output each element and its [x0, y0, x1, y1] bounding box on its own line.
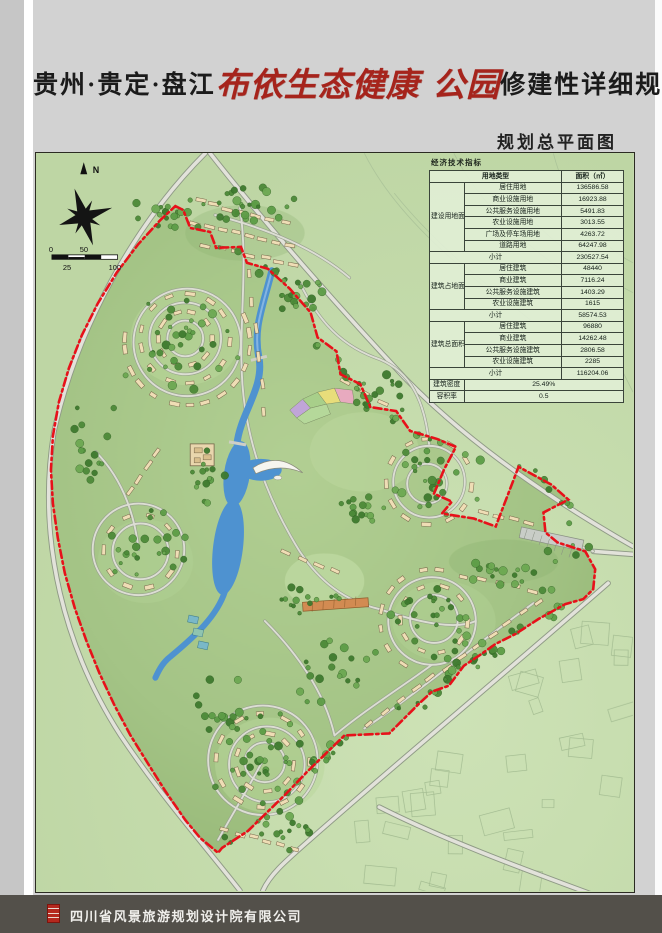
row-label: 公共服务设施用地: [464, 205, 562, 217]
title-block-footer: 四川省风景旅游规划设计院有限公司: [0, 895, 662, 933]
subtotal-value: 116204.06: [562, 368, 624, 380]
row-label: 居住建筑: [464, 321, 562, 333]
scale-0-label: 0: [49, 245, 53, 254]
group-total-floor-area: 建筑总面积: [430, 321, 465, 367]
subtotal-value: 58574.53: [562, 310, 624, 322]
row-value: 4263.72: [562, 228, 624, 240]
far-value: 0.5: [464, 391, 623, 403]
row-label: 商业设施用地: [464, 194, 562, 206]
col-header-land-type: 用地类型: [430, 171, 562, 183]
density-value: 25.49%: [464, 379, 623, 391]
row-value: 3013.55: [562, 217, 624, 229]
row-value: 2285: [562, 356, 624, 368]
far-label: 容积率: [430, 391, 465, 403]
row-value: 5491.83: [562, 205, 624, 217]
row-label: 广场及停车场用地: [464, 228, 562, 240]
row-value: 64247.98: [562, 240, 624, 252]
title-plan-type: 修建性详细规划: [500, 72, 662, 99]
company-name: 四川省风景旅游规划设计院有限公司: [70, 906, 302, 925]
col-header-area: 面积（㎡）: [562, 171, 624, 183]
row-label: 农业设施用地: [464, 217, 562, 229]
row-value: 2806.58: [562, 344, 624, 356]
table-caption: 经济技术指标: [431, 157, 624, 168]
row-label: 道路用地: [464, 240, 562, 252]
page-left-margin-band: [0, 0, 24, 895]
scale-25-label: 25: [63, 263, 71, 272]
row-value: 136586.58: [562, 182, 624, 194]
subtotal-label: 小计: [430, 310, 562, 322]
economic-indicators-table: 用地类型 面积（㎡） 建设用地面积 居住用地 136586.58 商业设施用地1…: [429, 170, 624, 403]
row-value: 96880: [562, 321, 624, 333]
row-label: 商业建筑: [464, 275, 562, 287]
row-value: 1615: [562, 298, 624, 310]
title-project-calligraphy: 布依生态健康 公园: [216, 65, 501, 104]
sheet-header: 贵州·贵定·盘江布依生态健康 公园修建性详细规划 规划总平面图: [33, 0, 655, 152]
density-label: 建筑密度: [430, 379, 465, 391]
scale-50-label: 50: [80, 245, 88, 254]
row-label: 商业建筑: [464, 333, 562, 345]
plan-sheet: { "header": { "title_prefix": "贵州·贵定·盘江"…: [0, 0, 662, 933]
row-label: 居住建筑: [464, 263, 562, 275]
drawing-name-label: 规划总平面图: [497, 128, 617, 153]
row-label: 公共服务设施建筑: [464, 344, 562, 356]
row-value: 14262.48: [562, 333, 624, 345]
row-label: 公共服务设施建筑: [464, 286, 562, 298]
scale-100-label: 100: [109, 263, 121, 272]
row-label: 农业设施建筑: [464, 356, 562, 368]
row-value: 7116.24: [562, 275, 624, 287]
subtotal-label: 小计: [430, 252, 562, 264]
row-value: 1403.29: [562, 286, 624, 298]
subtotal-value: 230527.54: [562, 252, 624, 264]
compass-north-label: N: [93, 165, 99, 175]
subtotal-label: 小计: [430, 368, 562, 380]
row-value: 48440: [562, 263, 624, 275]
group-construction-land: 建设用地面积: [430, 182, 465, 252]
page-title: 贵州·贵定·盘江布依生态健康 公园修建性详细规划: [33, 58, 655, 106]
row-value: 16923.88: [562, 194, 624, 206]
row-label: 农业设施建筑: [464, 298, 562, 310]
page-left-white-strip: [24, 0, 33, 895]
row-label: 居住用地: [464, 182, 562, 194]
group-building-footprint: 建筑占地面积: [430, 263, 465, 309]
company-seal-icon: [47, 904, 60, 923]
economic-indicators-panel: 经济技术指标 用地类型 面积（㎡） 建设用地面积 居住用地 136586.58 …: [429, 157, 624, 403]
page-right-white-strip: [655, 0, 662, 895]
title-location: 贵州·贵定·盘江: [33, 72, 216, 99]
